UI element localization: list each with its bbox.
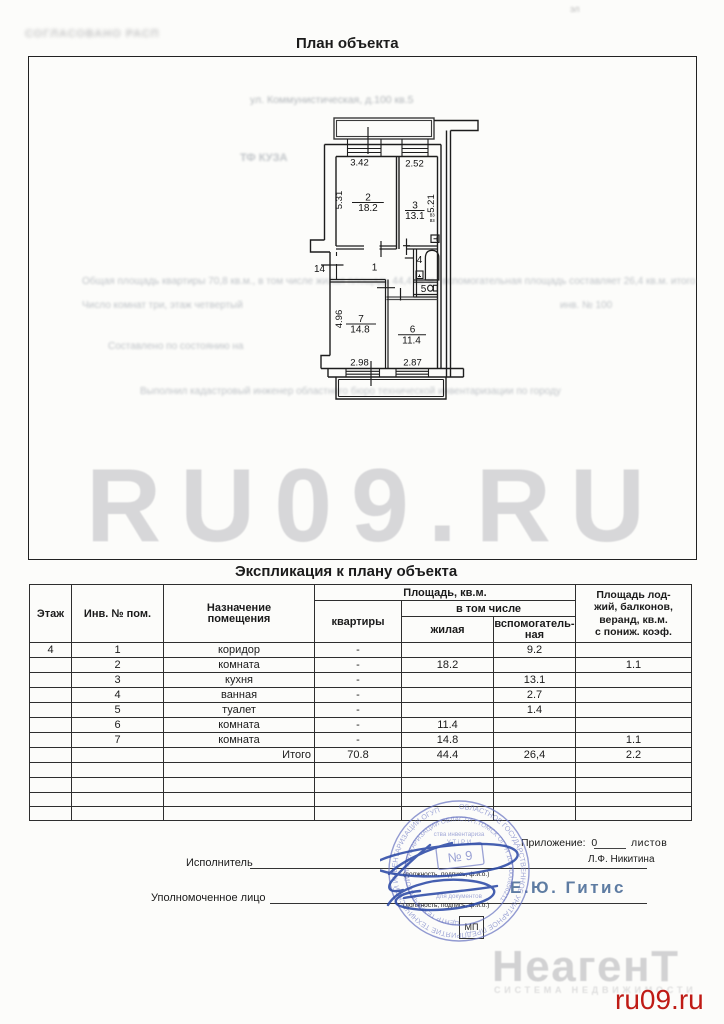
svg-text:2: 2 bbox=[365, 193, 371, 204]
svg-text:6: 6 bbox=[410, 325, 416, 336]
svg-text:вз: вз bbox=[430, 218, 436, 224]
svg-text:2.98: 2.98 bbox=[350, 358, 369, 369]
svg-text:7: 7 bbox=[358, 314, 364, 325]
svg-text:14: 14 bbox=[314, 264, 326, 275]
svg-text:для документов: для документов bbox=[436, 893, 482, 900]
svg-text:5: 5 bbox=[421, 284, 427, 295]
svg-text:3.42: 3.42 bbox=[350, 158, 369, 169]
svg-text:11.4: 11.4 bbox=[402, 336, 421, 347]
svg-text:4.96: 4.96 bbox=[334, 310, 345, 329]
svg-text:2.87: 2.87 bbox=[403, 358, 422, 369]
svg-text:ства инвентариза: ства инвентариза bbox=[434, 831, 485, 838]
svg-text:13.1: 13.1 bbox=[405, 211, 425, 222]
svg-text:14.8: 14.8 bbox=[350, 325, 370, 336]
svg-text:5.21: 5.21 bbox=[426, 194, 437, 213]
svg-text:3: 3 bbox=[412, 201, 418, 212]
svg-text:2.52: 2.52 bbox=[405, 159, 424, 170]
svg-text:4: 4 bbox=[417, 255, 423, 266]
svg-text:5.31: 5.31 bbox=[334, 191, 345, 210]
svg-text:№ 9: № 9 bbox=[447, 848, 473, 866]
svg-text:1: 1 bbox=[372, 263, 378, 274]
svg-text:18.2: 18.2 bbox=[358, 203, 378, 214]
